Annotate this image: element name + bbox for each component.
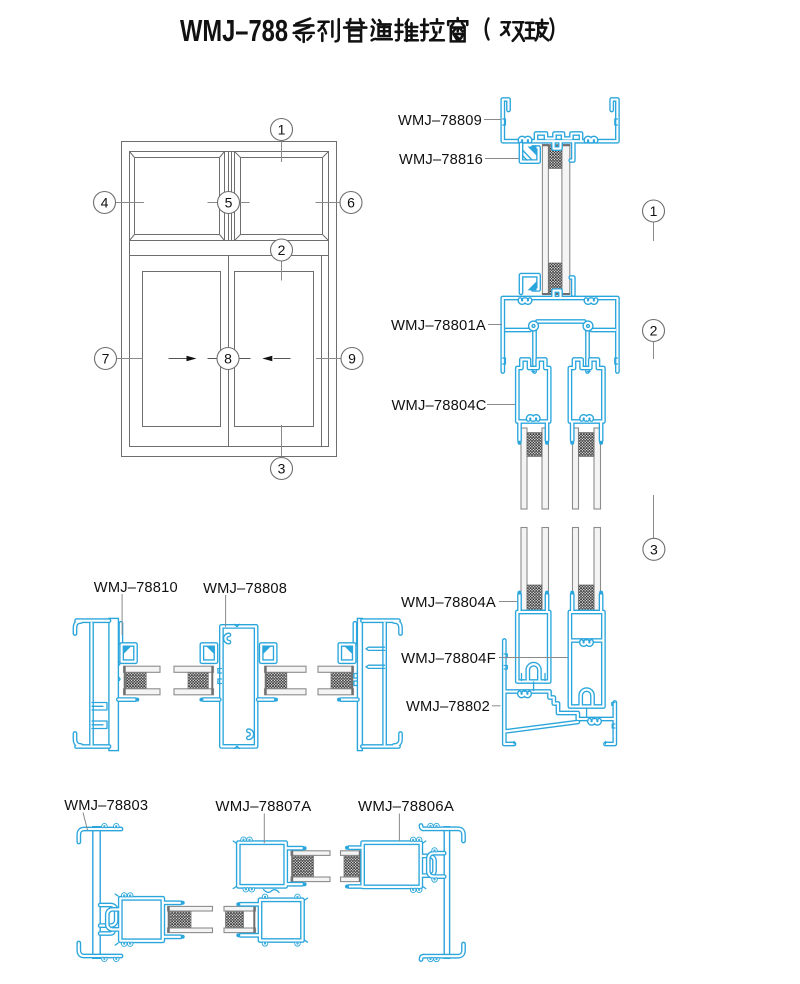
svg-text:WMJ–78809: WMJ–78809 xyxy=(398,112,482,129)
svg-text:WMJ–78804C: WMJ–78804C xyxy=(392,397,487,414)
svg-text:5: 5 xyxy=(225,195,233,211)
svg-text:3: 3 xyxy=(278,461,286,477)
svg-text:6: 6 xyxy=(347,195,355,211)
svg-text:7: 7 xyxy=(102,351,110,367)
svg-text:2: 2 xyxy=(278,242,286,258)
svg-text:WMJ–788: WMJ–788 xyxy=(180,13,288,48)
svg-text:WMJ–78808: WMJ–78808 xyxy=(203,580,287,597)
svg-text:WMJ–78802: WMJ–78802 xyxy=(406,698,490,715)
svg-text:WMJ–78807A: WMJ–78807A xyxy=(215,798,312,815)
svg-text:2: 2 xyxy=(650,323,658,339)
svg-text:1: 1 xyxy=(278,122,286,138)
svg-text:WMJ–78803: WMJ–78803 xyxy=(64,797,148,814)
svg-text:WMJ–78816: WMJ–78816 xyxy=(399,151,483,168)
svg-text:WMJ–78810: WMJ–78810 xyxy=(94,579,178,596)
svg-text:3: 3 xyxy=(650,541,658,557)
svg-text:WMJ–78804F: WMJ–78804F xyxy=(401,650,496,667)
svg-text:WMJ–78801A: WMJ–78801A xyxy=(391,317,487,334)
svg-text:9: 9 xyxy=(348,351,356,367)
svg-text:4: 4 xyxy=(101,195,109,211)
svg-text:WMJ–78806A: WMJ–78806A xyxy=(358,798,455,815)
svg-text:8: 8 xyxy=(224,351,232,367)
svg-text:WMJ–78804A: WMJ–78804A xyxy=(401,594,497,611)
svg-text:1: 1 xyxy=(650,203,658,219)
